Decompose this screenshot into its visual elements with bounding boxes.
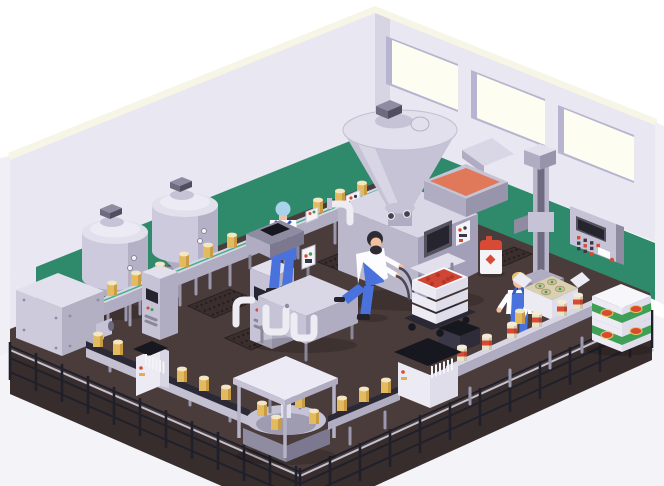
hopper-port [404,211,411,218]
left-wall-outer-strip [0,156,10,356]
can [257,401,267,416]
labeled-can [482,334,492,350]
worker-hairnet-cap [276,202,291,217]
panel-side [616,224,624,265]
tank-port [202,229,207,234]
lift-carriage [528,212,554,232]
can [177,367,187,382]
box-logo [601,310,613,317]
labeled-can [532,311,542,327]
tank-hatch [100,217,124,227]
can [199,376,209,391]
can [271,415,281,430]
isometric-scene [0,0,664,486]
trolley-wheel [408,323,416,331]
can [337,396,347,411]
can [515,309,525,324]
can [93,332,103,347]
can [309,409,319,424]
can [203,243,213,258]
red-canister [477,236,505,278]
right-wall-outer-strip [655,122,664,305]
box-logo [630,328,642,335]
panel-stop-button [610,258,614,262]
labeled-can [557,300,567,316]
can [179,252,189,267]
control-cabinet [142,265,178,340]
hopper-knob [411,117,429,131]
box-logo [630,306,642,313]
worker-shoe [357,314,370,320]
worker-shoe [334,297,345,302]
can [381,378,391,393]
tank-port [132,256,137,261]
worker-beard [370,246,382,255]
tank-port [128,266,133,271]
tank-port [198,239,203,244]
worker-hand [496,307,501,312]
tank-hatch [170,190,194,200]
box-logo [601,332,613,339]
labeled-can [507,322,517,338]
factory-illustration [0,0,664,486]
trolley-wheel [436,329,444,337]
can [113,340,123,355]
can [359,387,369,402]
hopper-port [388,213,395,220]
can [221,385,231,400]
labeled-can [573,293,583,309]
trolley-wheel [463,317,470,324]
can [107,281,117,296]
can [227,233,237,248]
can [131,271,141,286]
